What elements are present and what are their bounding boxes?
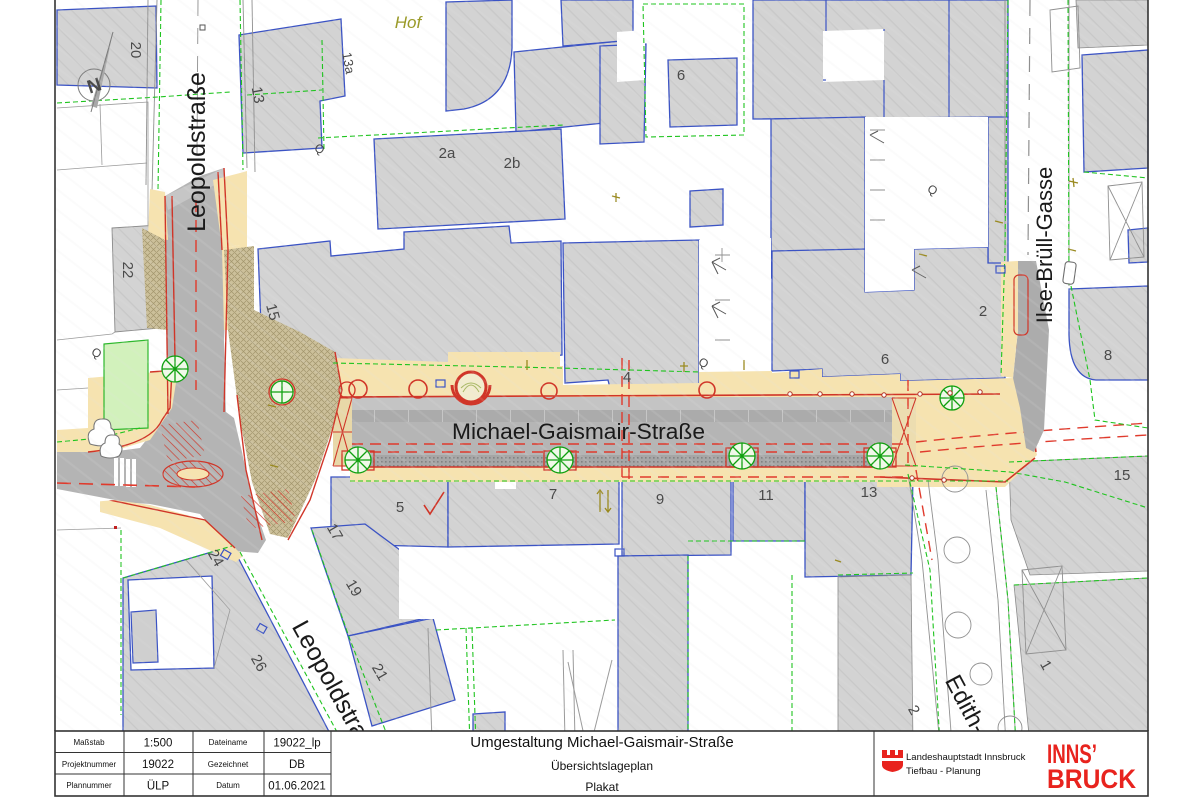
svg-text:DB: DB (289, 759, 305, 771)
svg-text:15: 15 (1114, 467, 1131, 484)
svg-text:13: 13 (248, 85, 268, 104)
svg-text:Datum: Datum (216, 781, 240, 790)
svg-text:01.06.2021: 01.06.2021 (268, 781, 326, 793)
svg-text:19022_lp: 19022_lp (273, 738, 320, 750)
svg-text:ÜLP: ÜLP (147, 781, 170, 793)
svg-text:9: 9 (656, 491, 664, 508)
svg-text:BRUCK: BRUCK (1047, 764, 1136, 794)
svg-text:11: 11 (758, 487, 774, 504)
svg-text:Dateiname: Dateiname (209, 738, 248, 747)
svg-text:Plannummer: Plannummer (66, 781, 112, 790)
svg-text:Tiefbau - Planung: Tiefbau - Planung (906, 766, 981, 777)
svg-text:Michael-Gaismair-Straße: Michael-Gaismair-Straße (452, 419, 705, 444)
svg-text:2a: 2a (439, 145, 456, 162)
svg-text:8: 8 (1104, 347, 1112, 364)
svg-text:Projektnummer: Projektnummer (62, 760, 117, 769)
svg-text:Ilse-Brüll-Gasse: Ilse-Brüll-Gasse (1032, 167, 1057, 323)
svg-text:22: 22 (119, 262, 136, 279)
svg-text:19022: 19022 (142, 759, 174, 771)
svg-text:Umgestaltung Michael-Gaismair-: Umgestaltung Michael-Gaismair-Straße (470, 734, 733, 751)
svg-text:20: 20 (127, 42, 144, 59)
svg-text:Landeshauptstadt Innsbruck: Landeshauptstadt Innsbruck (906, 752, 1026, 763)
svg-text:2: 2 (979, 303, 987, 320)
svg-text:Übersichtslageplan: Übersichtslageplan (551, 759, 653, 773)
svg-text:1:500: 1:500 (144, 738, 173, 750)
svg-text:7: 7 (549, 486, 557, 503)
svg-text:6: 6 (677, 67, 685, 84)
svg-text:13: 13 (861, 484, 878, 501)
svg-text:6: 6 (881, 351, 889, 368)
svg-text:Maßstab: Maßstab (73, 738, 105, 747)
svg-text:2b: 2b (504, 155, 521, 172)
svg-text:5: 5 (396, 499, 404, 516)
svg-text:Hof: Hof (395, 13, 424, 32)
svg-text:Plakat: Plakat (585, 780, 619, 794)
svg-text:Gezeichnet: Gezeichnet (208, 760, 249, 769)
svg-text:Leopoldstraße: Leopoldstraße (183, 72, 211, 232)
svg-text:4: 4 (623, 369, 631, 386)
